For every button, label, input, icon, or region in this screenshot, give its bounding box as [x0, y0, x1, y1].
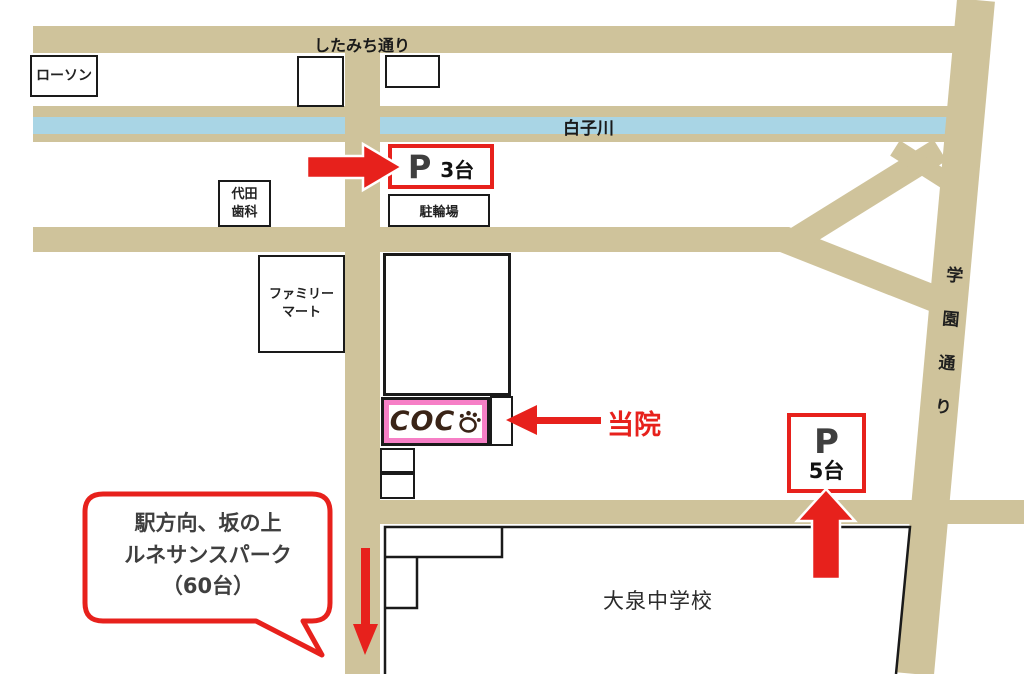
clinic-callout-label: 当院: [607, 403, 661, 442]
road-shitamichi: [33, 26, 975, 53]
shitamichi-street-label: したみち通り: [314, 32, 410, 56]
clinic-coco-box: COC: [381, 397, 490, 446]
parking-5-capacity: 5台: [809, 461, 845, 482]
lawson-label: ローソン: [36, 67, 92, 86]
access-map: ローソン 代田 歯科 P 3台 駐輪場 ファミリー マート COC: [0, 0, 1024, 674]
building-step-block: [490, 396, 513, 446]
building-large-block: [383, 253, 511, 396]
road-main-vertical: [345, 26, 380, 674]
small-block-1: [380, 448, 415, 473]
renaissance-park-bubble: 駅方向、坂の上 ルネサンスパーク （60台）: [95, 508, 321, 603]
parking-5-symbol: P: [814, 425, 839, 459]
parking-5-box: P 5台: [787, 413, 866, 493]
building-block-b: [385, 55, 440, 88]
small-block-2: [380, 473, 415, 499]
building-block-a: [297, 56, 344, 107]
building-daita-dental: 代田 歯科: [218, 180, 271, 227]
bubble-line3: （60台）: [95, 571, 321, 603]
building-lawson: ローソン: [30, 55, 98, 97]
familymart-label-line2: マート: [282, 304, 321, 322]
building-bike-parking: 駐輪場: [388, 194, 490, 227]
clinic-coco-label: COC: [390, 408, 456, 435]
shirako-river-label: 白子川: [563, 114, 614, 139]
daita-dental-label-line1: 代田: [231, 186, 257, 204]
paw-icon: [457, 409, 481, 435]
school-building-step-2: [385, 557, 417, 608]
bike-parking-label: 駐輪場: [419, 201, 458, 220]
bubble-line2: ルネサンスパーク: [95, 540, 321, 572]
bubble-line1: 駅方向、坂の上: [95, 508, 321, 540]
parking-3-capacity: 3台: [440, 154, 474, 180]
parking-3-symbol: P: [408, 151, 431, 183]
daita-dental-label-line2: 歯科: [231, 204, 257, 222]
familymart-label-line1: ファミリー: [269, 286, 334, 304]
school-building-step-1: [385, 527, 502, 557]
school-label: 大泉中学校: [603, 585, 713, 615]
parking-3-box: P 3台: [388, 144, 494, 189]
building-familymart: ファミリー マート: [258, 255, 345, 353]
river-shirako: [33, 117, 950, 134]
clinic-coco-sign: COC: [389, 405, 482, 438]
